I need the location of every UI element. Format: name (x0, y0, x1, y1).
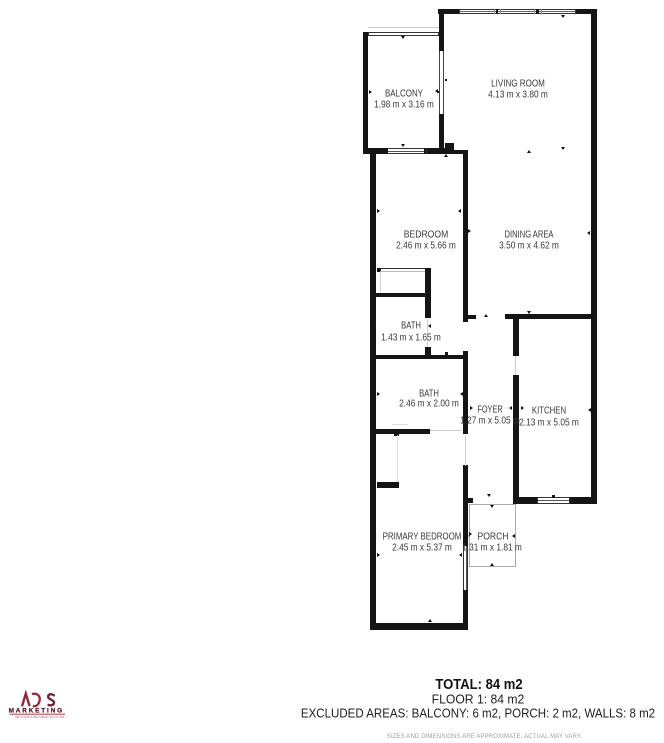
svg-text:WE KNOW A RELIABLE SOLUTION: WE KNOW A RELIABLE SOLUTION (15, 716, 64, 719)
svg-text:MARKETING: MARKETING (9, 708, 64, 715)
